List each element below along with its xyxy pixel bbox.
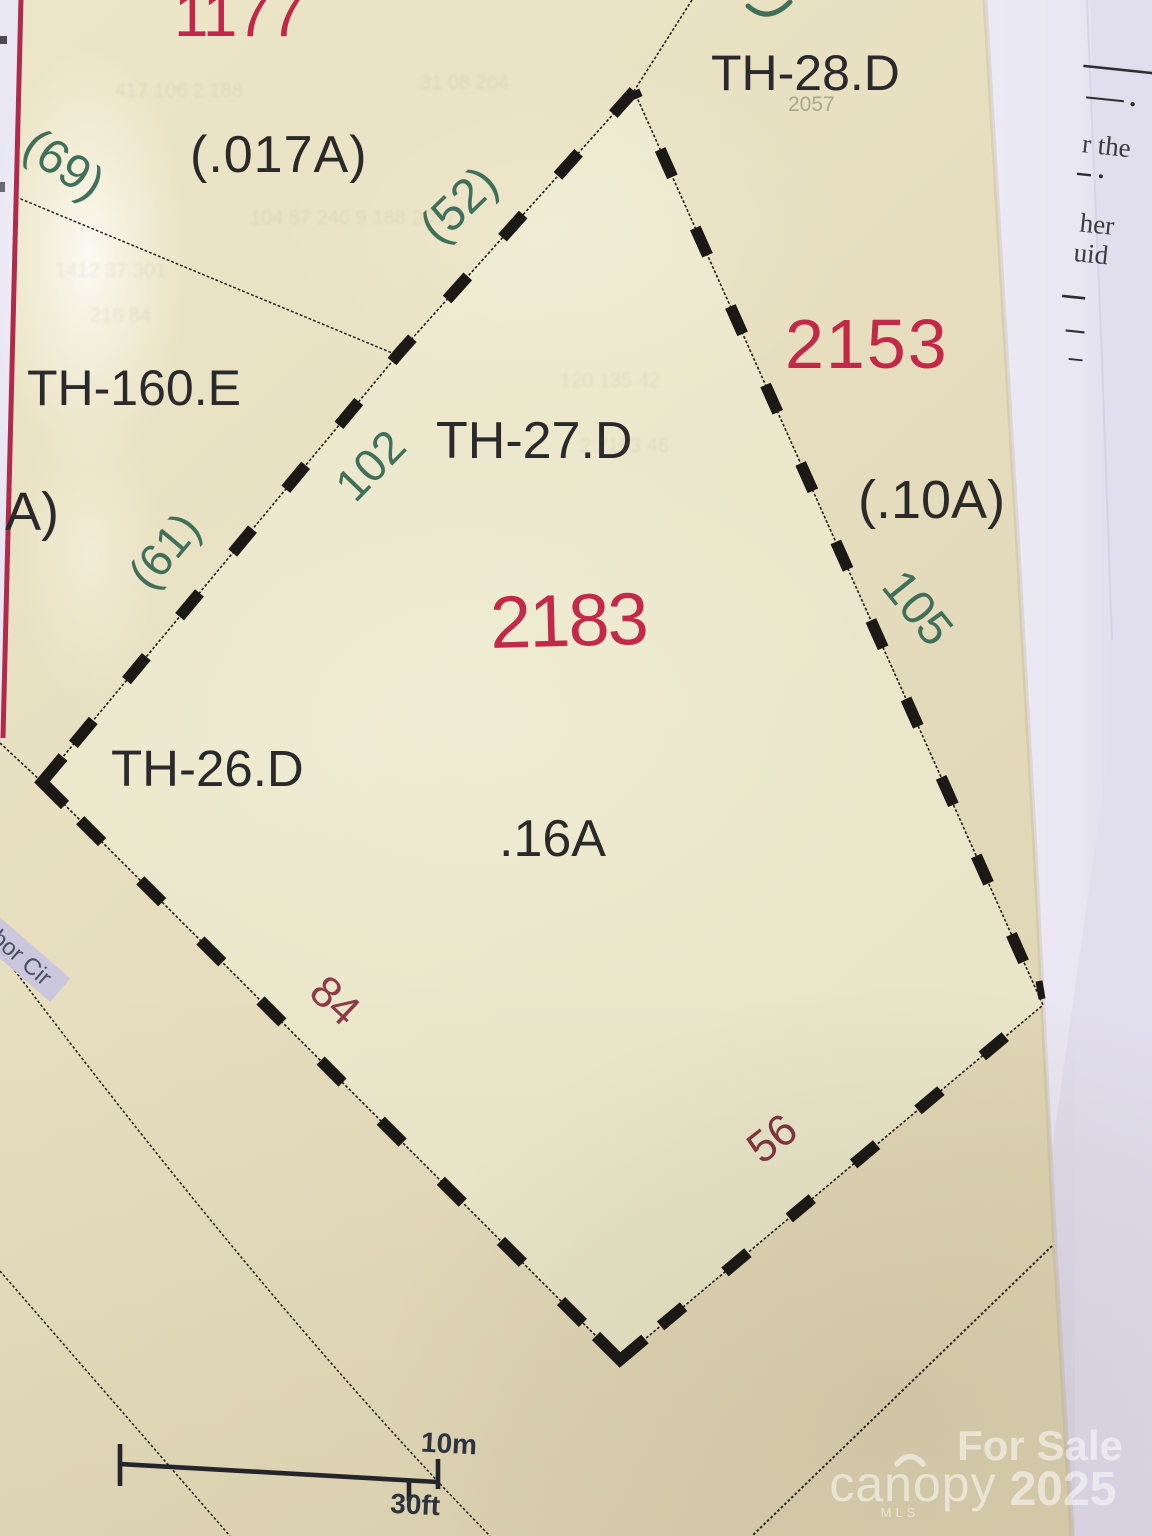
- svg-text:104 57 240 9 188 2057: 104 57 240 9 188 2057: [250, 207, 456, 229]
- svg-text:2183: 2183: [489, 577, 648, 664]
- svg-text:2 2183 46: 2 2183 46: [580, 435, 669, 457]
- svg-text:1412 37 301: 1412 37 301: [55, 260, 166, 282]
- svg-text:TH-26.D: TH-26.D: [111, 740, 304, 797]
- svg-text:canopy: canopy: [829, 1456, 996, 1512]
- svg-text:1177: 1177: [174, 0, 303, 50]
- svg-text:r the: r the: [1081, 128, 1133, 163]
- svg-text:31 08 204: 31 08 204: [420, 72, 509, 94]
- svg-text:2057: 2057: [788, 93, 835, 116]
- svg-text:.16A: .16A: [499, 810, 606, 868]
- svg-text:2025: 2025: [1010, 1463, 1117, 1516]
- svg-text:417 106 2 188: 417 106 2 188: [115, 80, 243, 102]
- svg-text:2153: 2153: [785, 305, 949, 383]
- svg-text:MLS: MLS: [881, 1505, 920, 1520]
- svg-text:A): A): [5, 482, 59, 542]
- svg-text:216 84: 216 84: [90, 305, 151, 327]
- svg-text:30ft: 30ft: [390, 1488, 441, 1522]
- svg-text:(.10A): (.10A): [858, 470, 1005, 530]
- svg-text:10m: 10m: [420, 1427, 478, 1461]
- svg-text:her: her: [1078, 207, 1115, 240]
- svg-text:120 135 42: 120 135 42: [560, 370, 660, 392]
- svg-text:(.017A): (.017A): [190, 126, 368, 184]
- svg-text:uid: uid: [1072, 237, 1110, 270]
- svg-text:TH-160.E: TH-160.E: [27, 360, 241, 416]
